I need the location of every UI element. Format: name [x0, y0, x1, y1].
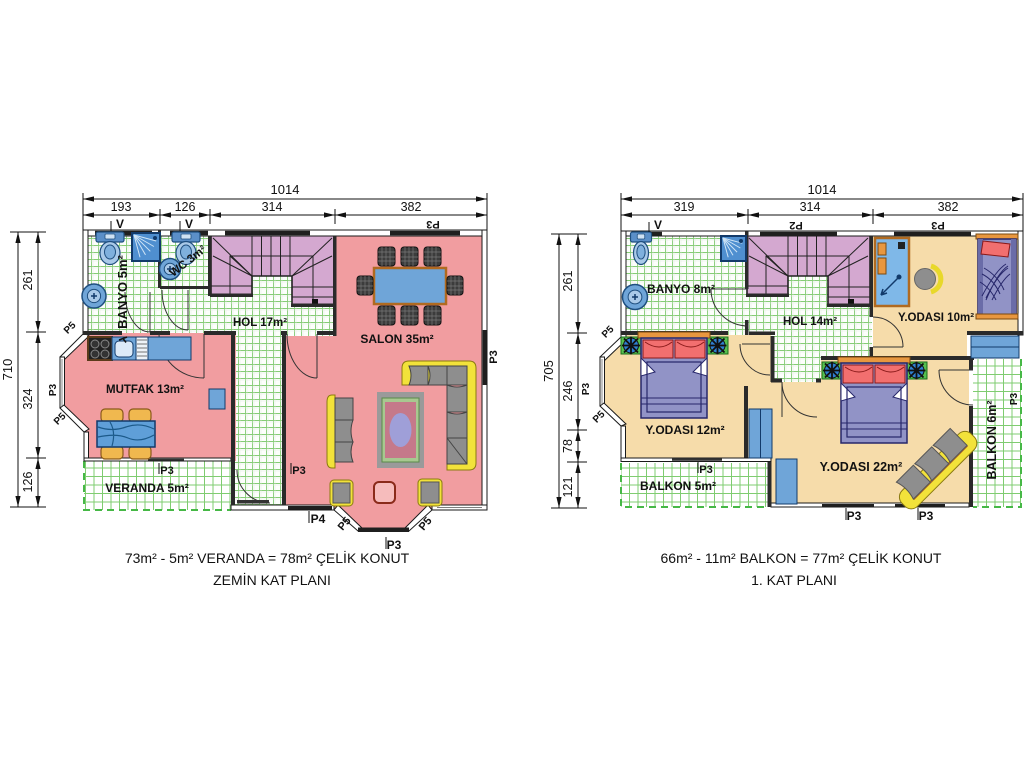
svg-text:P3: P3 [847, 509, 862, 523]
svg-text:MUTFAK 13m²: MUTFAK 13m² [106, 384, 184, 396]
svg-text:BANYO 8m²: BANYO 8m² [647, 282, 715, 296]
svg-text:P3: P3 [426, 218, 439, 230]
svg-text:V: V [185, 217, 193, 231]
svg-text:705: 705 [541, 360, 556, 382]
svg-text:SALON 35m²: SALON 35m² [360, 332, 433, 346]
svg-text:P3: P3 [488, 350, 500, 363]
svg-text:P3: P3 [1009, 392, 1020, 405]
svg-text:261: 261 [561, 271, 575, 292]
svg-text:314: 314 [262, 200, 283, 214]
svg-text:P2: P2 [789, 219, 802, 231]
svg-text:BALKON 5m²: BALKON 5m² [640, 479, 716, 493]
svg-text:710: 710 [0, 359, 15, 381]
svg-text:HOL 14m²: HOL 14m² [783, 316, 837, 328]
svg-text:V: V [654, 218, 662, 232]
svg-text:382: 382 [938, 200, 959, 214]
svg-text:BALKON 6m²: BALKON 6m² [985, 400, 999, 479]
svg-text:P3: P3 [699, 464, 712, 476]
svg-text:246: 246 [561, 381, 575, 402]
svg-text:73m² - 5m² VERANDA = 78m² ÇELİ: 73m² - 5m² VERANDA = 78m² ÇELİK KONUT [125, 549, 410, 566]
svg-text:V: V [116, 217, 124, 231]
svg-text:126: 126 [175, 200, 196, 214]
svg-text:VERANDA 5m²: VERANDA 5m² [105, 481, 189, 495]
svg-text:1014: 1014 [271, 182, 300, 197]
svg-text:324: 324 [21, 389, 35, 410]
svg-text:ZEMİN KAT PLANI: ZEMİN KAT PLANI [213, 571, 331, 588]
svg-text:1. KAT PLANI: 1. KAT PLANI [751, 572, 837, 588]
svg-text:319: 319 [674, 200, 695, 214]
svg-text:P3: P3 [919, 509, 934, 523]
svg-text:HOL 17m²: HOL 17m² [233, 317, 287, 329]
svg-text:P3: P3 [581, 382, 592, 395]
svg-text:BANYO 5m²: BANYO 5m² [115, 254, 130, 328]
svg-text:P3: P3 [160, 465, 173, 477]
svg-text:1014: 1014 [808, 182, 837, 197]
svg-text:P4: P4 [311, 512, 326, 526]
svg-text:261: 261 [21, 270, 35, 291]
svg-text:P3: P3 [48, 383, 59, 396]
svg-text:314: 314 [800, 200, 821, 214]
svg-text:P3: P3 [931, 219, 944, 231]
svg-text:121: 121 [561, 477, 575, 498]
svg-text:Y.ODASI 22m²: Y.ODASI 22m² [820, 460, 903, 474]
svg-text:Y.ODASI 10m²: Y.ODASI 10m² [898, 312, 974, 324]
svg-text:P3: P3 [292, 465, 305, 477]
svg-text:126: 126 [21, 472, 35, 493]
svg-text:193: 193 [111, 200, 132, 214]
svg-text:382: 382 [401, 200, 422, 214]
svg-text:66m² - 11m² BALKON = 77m² ÇELİ: 66m² - 11m² BALKON = 77m² ÇELİK KONUT [661, 549, 942, 566]
svg-text:78: 78 [561, 439, 575, 453]
svg-text:Y.ODASI 12m²: Y.ODASI 12m² [645, 423, 724, 437]
